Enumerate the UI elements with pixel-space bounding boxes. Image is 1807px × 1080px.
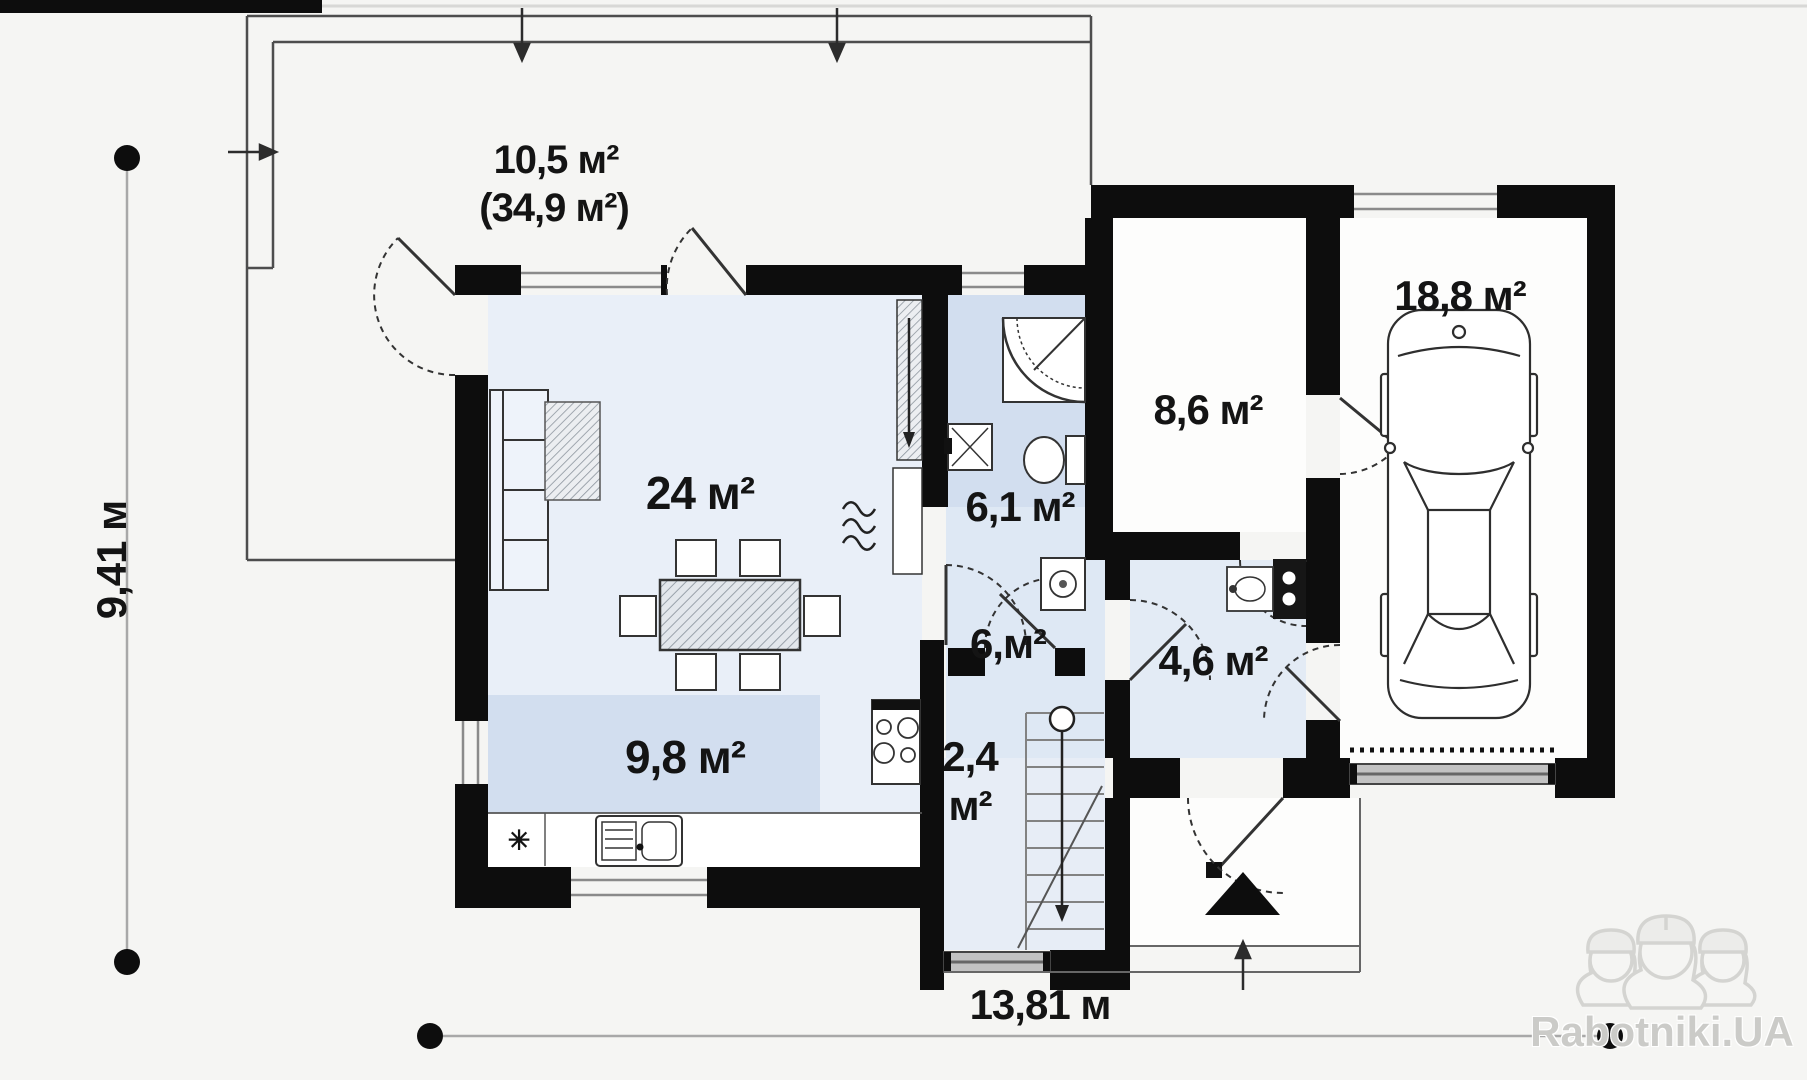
hall-label: 6,м² — [970, 623, 1046, 665]
stairs-area-label-value: 2,4 — [942, 736, 997, 778]
washing-machine — [1041, 558, 1085, 610]
shower — [1003, 318, 1085, 402]
window-garage — [1348, 185, 1503, 218]
vertical-dimension-label: 9,41 м — [91, 501, 133, 619]
garage-label: 18,8 м² — [1394, 275, 1525, 317]
bathroom-sink — [944, 424, 992, 470]
living-room-label: 24 м² — [646, 470, 754, 516]
window-bottom-kitchen — [565, 867, 713, 908]
chair — [740, 654, 780, 690]
kitchen-sink — [596, 816, 682, 866]
floor-plan: 10,5 м² (34,9 м²) 24 м² 9,8 м² 6,1 м² 6,… — [0, 0, 1807, 1080]
floor-plan-drawing — [0, 0, 1807, 1080]
utility-basin — [1227, 567, 1273, 611]
watermark-workers-icon — [1578, 916, 1755, 1008]
star-symbol: ✳ — [508, 828, 531, 855]
vent-shaft — [897, 300, 922, 460]
car-top-view — [1381, 310, 1537, 718]
chair — [620, 596, 656, 636]
corridor-label: 4,6 м² — [1158, 640, 1267, 682]
chair — [676, 540, 716, 576]
stair-newel — [1050, 707, 1074, 731]
back-door — [944, 952, 1050, 972]
window-left-kitchen — [455, 715, 488, 790]
table — [660, 580, 800, 650]
entrance-arrow — [1236, 942, 1250, 990]
window-top-living — [515, 265, 667, 295]
kitchen-label: 9,8 м² — [625, 734, 745, 780]
stove — [872, 700, 920, 784]
bathroom-label: 6,1 м² — [965, 486, 1074, 528]
door-terrace-top — [667, 228, 746, 295]
chair — [676, 654, 716, 690]
window-top-bathroom — [956, 265, 1030, 295]
horizontal-dimension-label: 13,81 м — [970, 984, 1111, 1026]
chair — [804, 596, 840, 636]
terrace-arrows — [228, 8, 844, 159]
rug — [545, 402, 600, 500]
cabinet — [893, 468, 922, 574]
utility-room-label: 8,6 м² — [1153, 389, 1262, 431]
sofa — [490, 390, 548, 590]
terrace-total-area-label: (34,9 м²) — [479, 188, 629, 228]
chair — [740, 540, 780, 576]
stairs-area-label-unit: м² — [948, 785, 991, 827]
boiler — [1273, 559, 1306, 619]
toilet — [1024, 436, 1085, 484]
watermark-text: Rabotniki.UA — [1530, 1008, 1794, 1056]
top-left-bar — [0, 0, 322, 13]
door-terrace-left — [374, 238, 455, 375]
terrace-area-label: 10,5 м² — [494, 140, 619, 180]
